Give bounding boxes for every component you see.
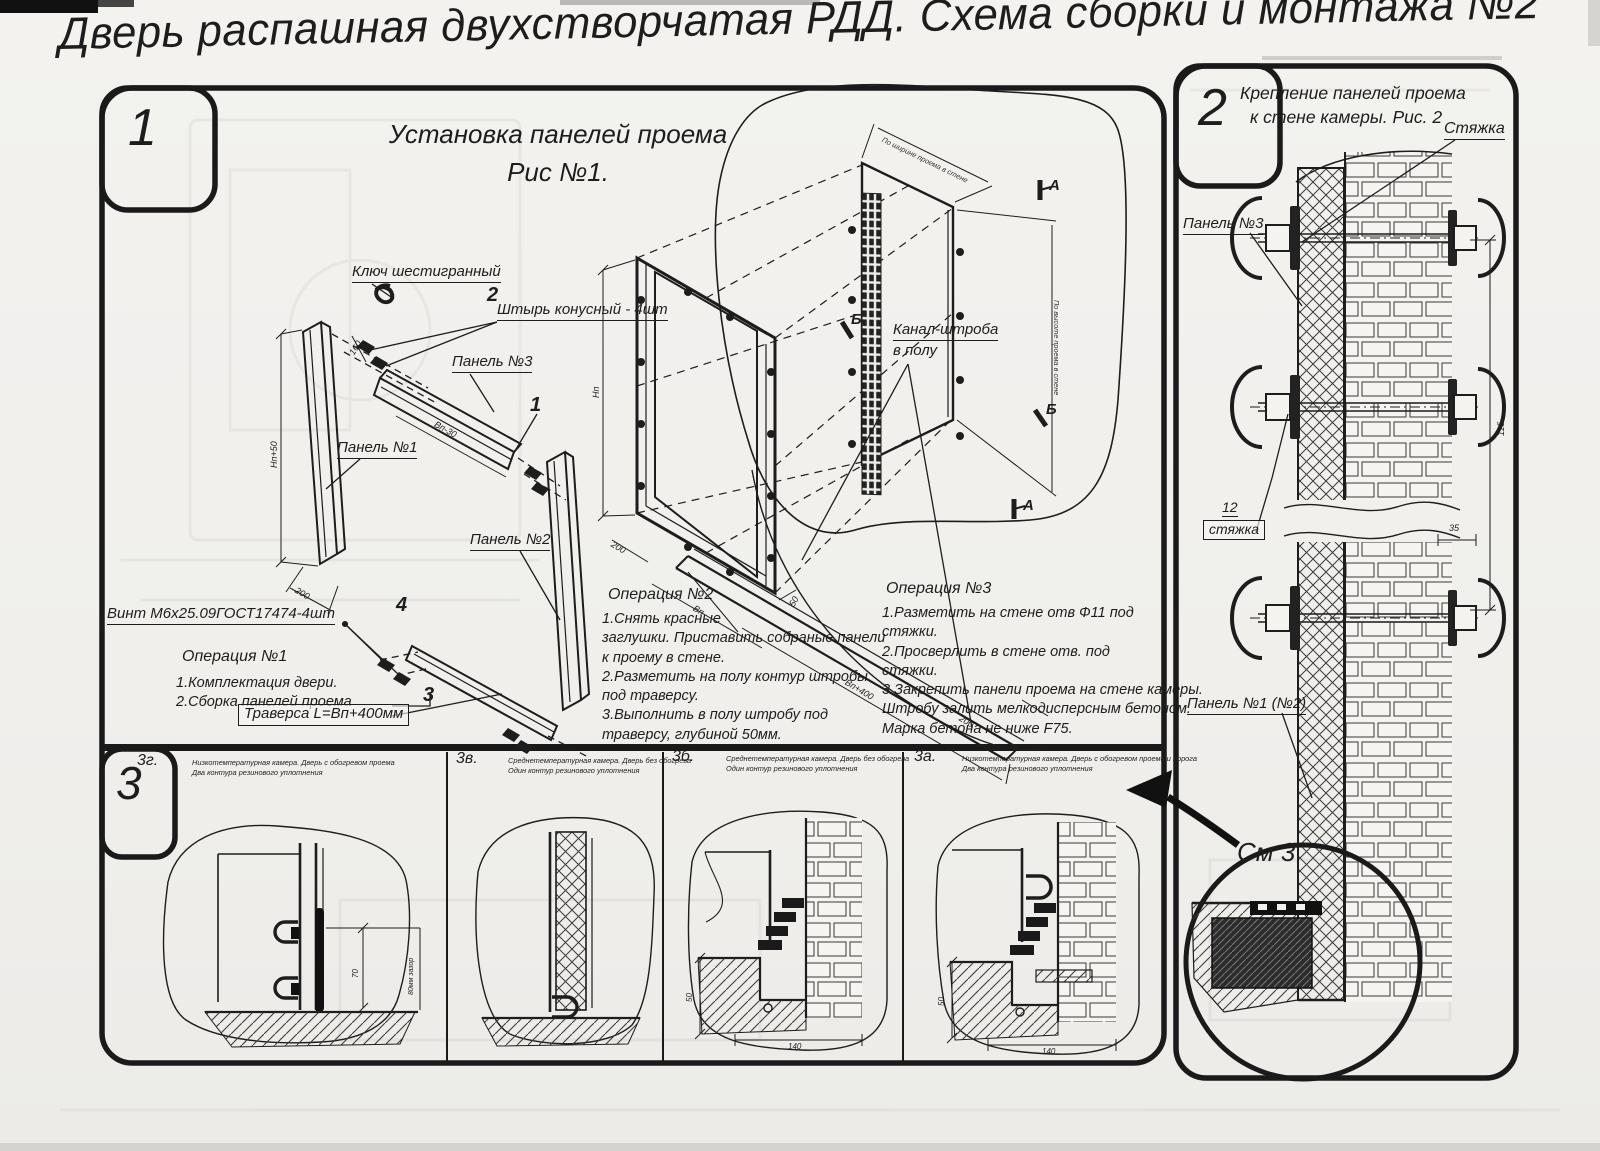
callout-4: 4 — [396, 594, 407, 616]
fig2-title-line1: Крепление панелей проема — [1240, 84, 1466, 103]
op2-title: Операция №2 — [608, 586, 713, 604]
section-marker-a2: А — [1023, 498, 1034, 515]
fig2-title-line2: к стене камеры. Рис. 2 — [1250, 108, 1442, 127]
label-traverse: Траверса L=Вп+400мм — [238, 704, 409, 726]
dim-3b-50: 50 — [686, 993, 695, 1002]
label-tie: Стяжка — [1444, 120, 1505, 140]
dim-35: 35 — [1449, 524, 1459, 534]
label-panel1: Панель №1 — [337, 440, 417, 459]
dim-hp50: Нп+50 — [270, 441, 280, 468]
view-3b — [688, 811, 887, 1050]
dim-3a-140: 140 — [1042, 1048, 1055, 1057]
label-panel12: Панель №1 (№2) — [1187, 696, 1306, 715]
view-3a-id: 3а. — [914, 748, 936, 766]
fig1-title-line1: Установка панелей проема — [368, 120, 748, 149]
label-panel3: Панель №3 — [452, 354, 532, 373]
section1-number: 1 — [128, 100, 157, 157]
drawing-linework — [0, 0, 1600, 1151]
label-pin: Штырь конусный - 4шт — [497, 302, 668, 321]
op1-title: Операция №1 — [182, 648, 287, 666]
op3-text: 1.Разметить на стене отв Ф11 под стяжки.… — [882, 604, 1203, 739]
dim-np: Нп — [592, 387, 602, 398]
dim-115: 115 — [1497, 422, 1507, 436]
op2-text: 1.Снять красные заглушки. Приставить соб… — [602, 610, 885, 745]
dim-3a-50: 50 — [938, 997, 947, 1006]
view-3b-id: 3б. — [672, 748, 694, 766]
label-panel2: Панель №2 — [470, 532, 550, 551]
callout-3: 3 — [423, 684, 434, 706]
dim-70: 70 — [352, 969, 361, 978]
view-3v-id: 3в. — [456, 750, 478, 768]
section2-number: 2 — [1198, 80, 1227, 137]
dim-gap: 80мм зазор — [408, 958, 416, 995]
view-3g-desc: Низкотемпературная камера. Дверь с обогр… — [192, 758, 452, 778]
fig1-title-line2: Рис №1. — [368, 158, 748, 187]
view-3v — [476, 818, 654, 1046]
dim-height-note: По высоте проема в стене — [1052, 300, 1060, 395]
scanned-drawing-page: Дверь распашная двухстворчатая РДД. Схем… — [0, 0, 1600, 1151]
section-marker-b1: Б — [851, 312, 862, 329]
label-tie12: стяжка — [1203, 520, 1265, 540]
section-marker-a1: А — [1049, 178, 1060, 195]
view-3a-desc: Низкотемпературная камера. Дверь с обогр… — [962, 754, 1222, 774]
view-3g — [164, 825, 420, 1047]
see-detail-3: См 3 — [1237, 838, 1295, 867]
view-3a — [936, 814, 1139, 1054]
callout-1: 1 — [530, 394, 541, 416]
view-3b-desc: Среднетемпературная камера. Дверь без об… — [726, 754, 986, 774]
section-marker-b2: Б — [1046, 402, 1057, 419]
label-panel3-s2: Панель №3 — [1183, 216, 1263, 235]
label-screw: Винт М6х25.09ГОСТ17474-4шт — [107, 606, 335, 625]
label-hex-key: Ключ шестигранный — [352, 264, 501, 283]
op3-title: Операция №3 — [886, 580, 991, 598]
label-channel-line1: Канал-штроба — [893, 322, 998, 341]
view-3g-id: 3г. — [137, 752, 158, 770]
label-channel-line2: в полу — [893, 343, 937, 360]
dim-3b-140: 140 — [788, 1043, 801, 1052]
callout-12: 12 — [1222, 500, 1238, 517]
